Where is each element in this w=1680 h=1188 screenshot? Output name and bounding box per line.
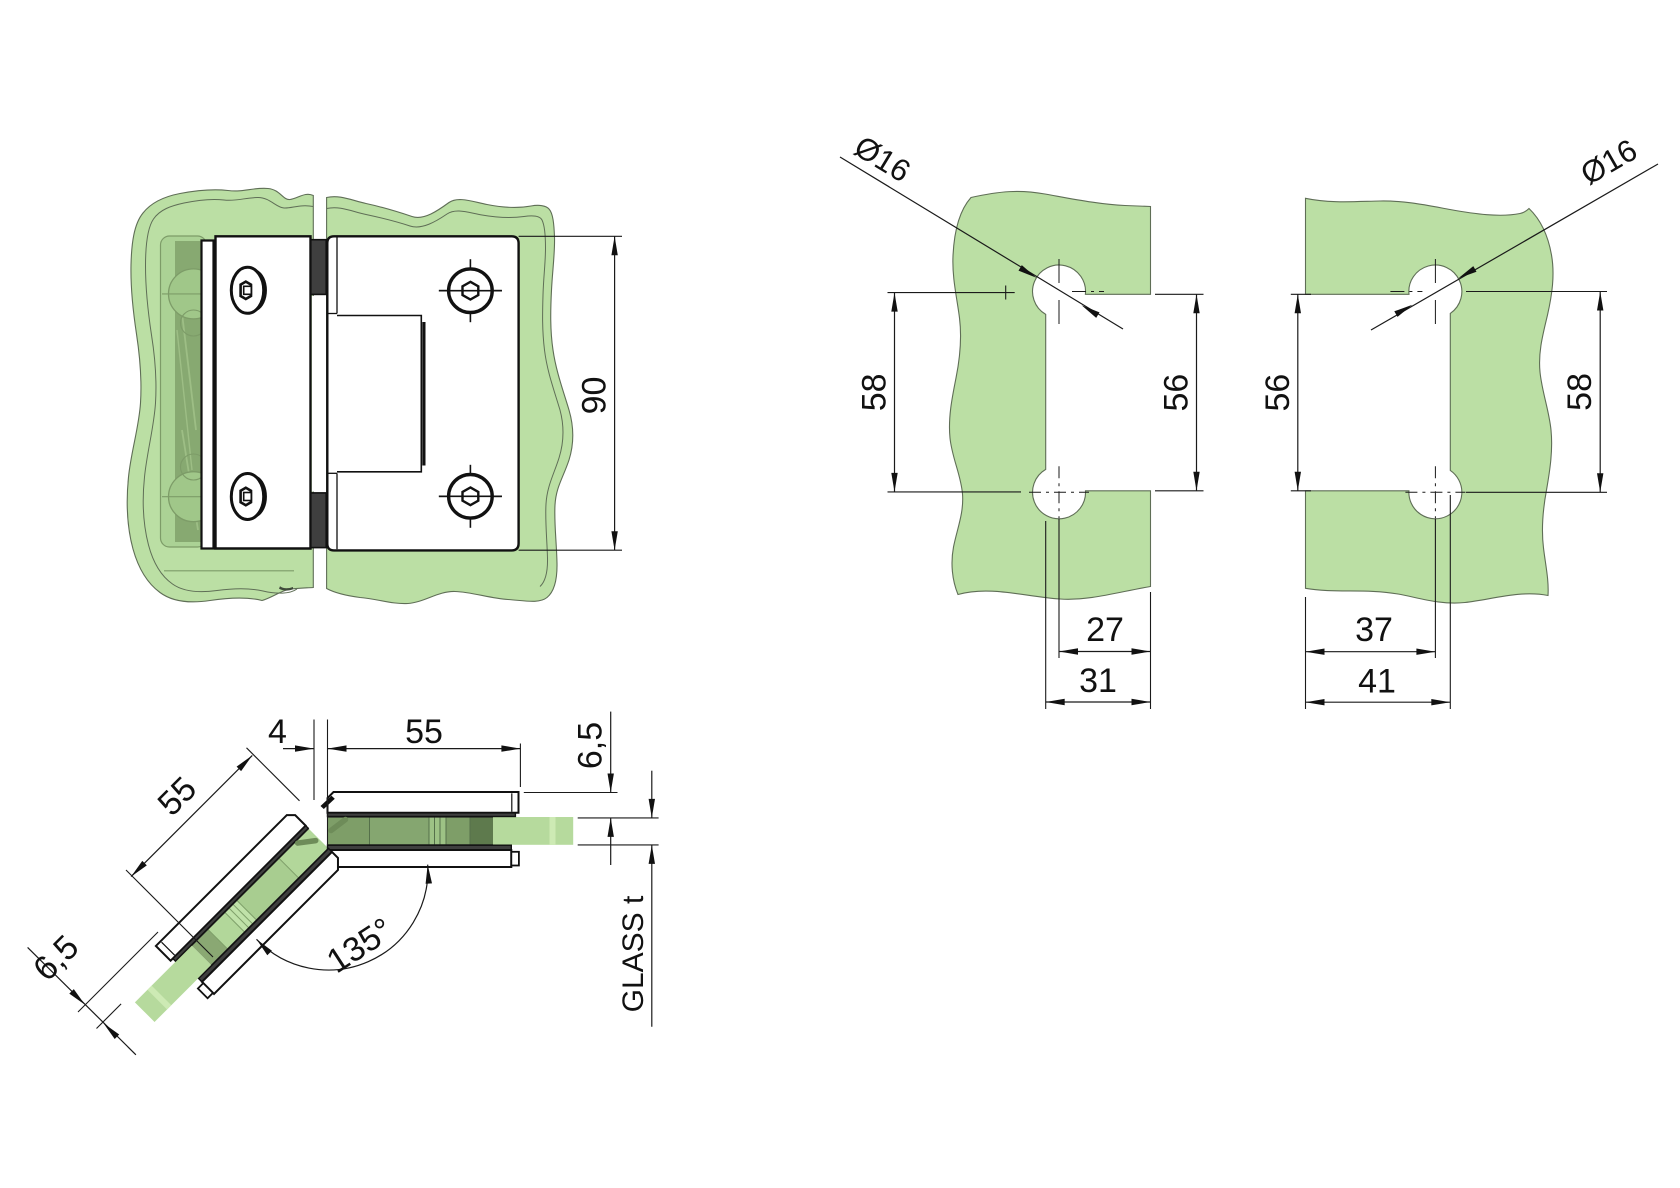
svg-text:90: 90 <box>576 377 614 415</box>
svg-text:27: 27 <box>1086 611 1124 649</box>
svg-text:58: 58 <box>1561 373 1599 411</box>
svg-text:55: 55 <box>151 770 205 824</box>
svg-text:55: 55 <box>405 713 443 751</box>
svg-text:Ø16: Ø16 <box>848 129 916 189</box>
svg-text:37: 37 <box>1355 611 1393 649</box>
svg-text:6,5: 6,5 <box>26 928 86 988</box>
svg-text:Ø16: Ø16 <box>1575 132 1643 191</box>
svg-text:4: 4 <box>268 713 287 751</box>
svg-text:56: 56 <box>1259 374 1297 412</box>
svg-text:41: 41 <box>1358 663 1396 701</box>
svg-text:58: 58 <box>856 373 894 411</box>
svg-text:GLASS t: GLASS t <box>617 895 650 1012</box>
svg-text:6,5: 6,5 <box>572 722 610 769</box>
svg-text:31: 31 <box>1079 662 1117 700</box>
svg-text:56: 56 <box>1158 374 1196 412</box>
